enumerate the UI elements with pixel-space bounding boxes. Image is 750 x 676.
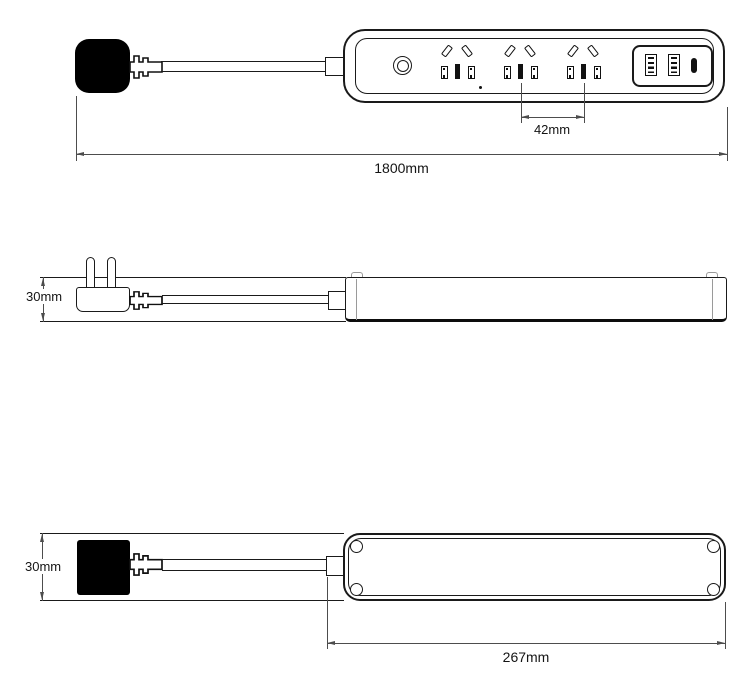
screw-hole-icon [350, 540, 363, 553]
dim-extension-line [327, 577, 328, 649]
dim-arrow-icon [327, 641, 335, 645]
dim-arrow-icon [40, 592, 44, 600]
technical-drawing: 42mm 1800mm 30mm [0, 0, 750, 676]
dim-extension-line [725, 602, 726, 649]
mains-plug-icon [77, 540, 130, 595]
dim-extension-line [40, 533, 344, 534]
cable-strain-relief-icon [129, 553, 163, 576]
dim-line-body-length [327, 643, 725, 644]
screw-hole-icon [350, 583, 363, 596]
bottom-view: 30mm 267mm [0, 0, 750, 676]
dim-label-body-length: 267mm [327, 649, 725, 665]
screw-hole-icon [707, 583, 720, 596]
screw-hole-icon [707, 540, 720, 553]
dim-arrow-icon [717, 641, 725, 645]
power-cable [162, 559, 327, 571]
strip-bottom-inner-line [348, 538, 721, 596]
dim-arrow-icon [40, 534, 44, 542]
dim-label-height-bottom: 30mm [22, 559, 64, 574]
dim-extension-line [40, 600, 344, 601]
